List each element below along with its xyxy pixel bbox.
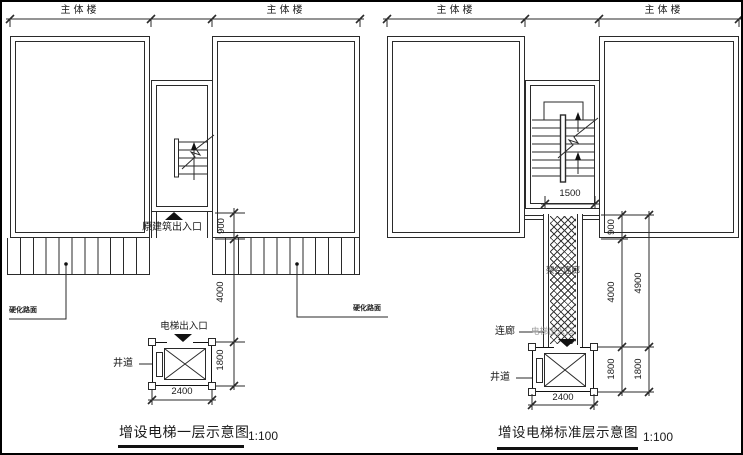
left-plan-pavement-label-left: 硬化路面 [9,307,37,315]
right-dim-shaft-depth-outer: 1800 [634,354,646,384]
left-dim-shaft-width: 2400 [152,387,212,397]
left-dim-shaft-depth: 1800 [216,345,228,375]
left-plan-original-entrance-label: 原建筑出入口 [139,222,205,233]
left-plan-shaft-door-gap [167,340,193,345]
left-plan-pavement-band-left [7,238,150,275]
left-plan-scale: 1:100 [248,430,278,443]
left-plan-title-underline [118,445,244,448]
right-plan-shaft-counterweight [536,358,543,383]
right-plan-corridor-label: 连廊 [495,326,515,337]
left-plan-building-label-left: 主体楼 [45,5,115,16]
right-plan-title-underline [497,447,638,450]
left-dim-forecourt-length: 4000 [216,277,228,307]
right-plan-shaft-corner-post-tr [590,343,598,351]
left-plan-pavement-band-right [212,238,360,275]
left-plan-title: 增设电梯一层示意图 [119,425,243,440]
right-main-building-dimension-line [383,15,743,27]
left-plan-elevator-entrance-label: 电梯出入口 [158,322,210,332]
right-plan-face-wall-right [582,215,600,220]
right-plan-face-wall-left [525,215,544,220]
right-dim-corridor-length: 4000 [607,277,619,307]
left-main-building-dimension-line [6,15,364,27]
right-dim-total-length: 4900 [634,268,646,298]
right-plan-shaft-door-gap [554,345,580,350]
right-plan-scale: 1:100 [643,431,673,444]
left-original-entrance-arrow [165,212,183,220]
left-plan-shaft-corner-post-tl [148,338,156,346]
left-plan-building-left [10,36,150,238]
right-dim-shaft-width: 2400 [532,393,594,403]
right-dim-entrance-depth: 900 [607,212,619,242]
right-plan-stair-room-inner-wall [530,85,595,204]
left-plan-vestibule-wall-right [207,212,213,238]
right-plan-building-label-left: 主体楼 [421,5,491,16]
left-plan-building-label-right: 主体楼 [251,5,321,16]
drawing-canvas: 主体楼 主体楼 原建筑出入口 硬化路面 硬化路面 电梯出入口 井道 900 40… [0,0,743,455]
left-plan-building-right-inner-wall [217,41,355,233]
right-plan-shaft-label: 井道 [490,372,510,383]
left-plan-building-left-inner-wall [15,41,145,233]
right-plan-corridor-hatch [550,216,576,344]
right-plan-corridor-hatch-label: 架空连廊 [546,266,580,275]
right-plan-elevator-car-box [544,353,586,387]
left-plan-stair-room-inner-wall [156,85,208,207]
left-dim-entrance-depth: 900 [217,211,229,241]
right-plan-elevator-entrance-label: 电梯出入口 [531,327,574,336]
right-dim-stair-width: 1500 [545,189,595,199]
right-plan-building-left [387,36,525,238]
left-plan-shaft-label: 井道 [113,358,133,369]
left-plan-building-right [212,36,360,238]
left-plan-pavement-label-right: 硬化路面 [353,305,381,313]
right-plan-building-right [599,36,739,238]
left-plan-elevator-car-box [164,348,206,380]
right-plan-building-right-inner-wall [604,41,734,233]
left-plan-shaft-counterweight [156,352,163,377]
right-plan-title: 增设电梯标准层示意图 [498,426,638,441]
right-plan-building-label-right: 主体楼 [629,5,699,16]
right-dim-shaft-depth-inner: 1800 [607,354,619,384]
right-plan-shaft-corner-post-tl [528,343,536,351]
left-plan-shaft-corner-post-tr [208,338,216,346]
left-plan-stair-room [151,80,213,212]
right-plan-building-left-inner-wall [392,41,520,233]
